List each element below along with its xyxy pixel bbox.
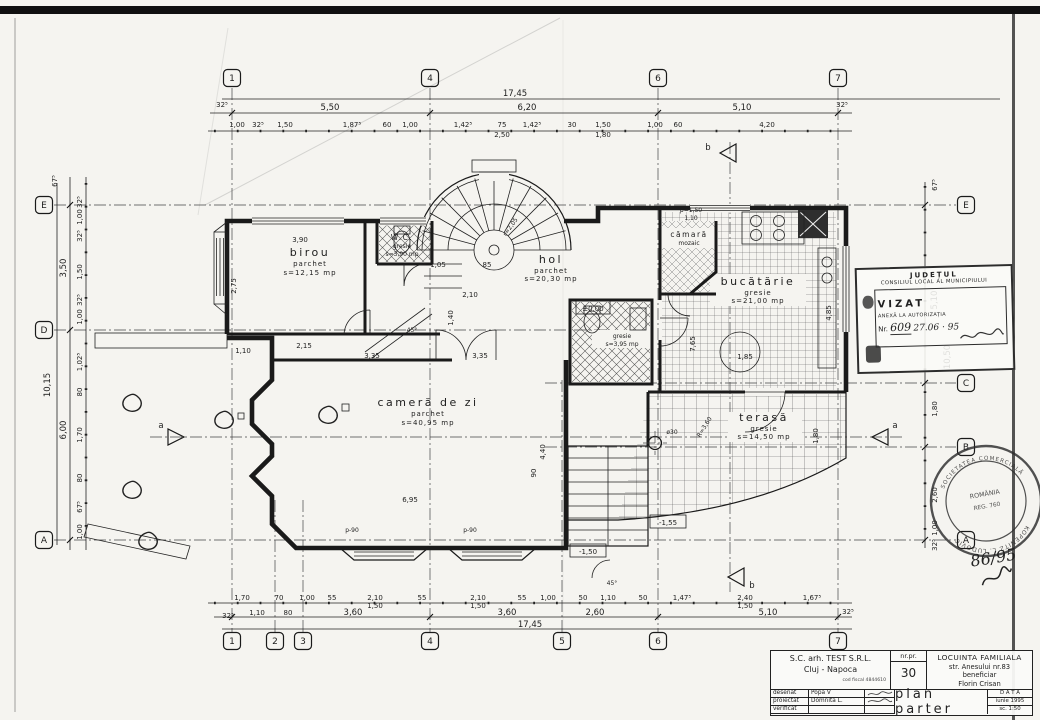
parapet-note: p=1,50 — [680, 207, 702, 214]
section-b-label: b — [749, 581, 754, 591]
room-terasa-area: s=14,50 mp — [737, 433, 790, 441]
grid-row-D: D — [41, 326, 48, 336]
dim-label: 2,10 — [470, 594, 486, 602]
role-label: verificat — [771, 706, 809, 714]
dim-label: 1,80 — [812, 428, 820, 444]
level-minus155: -1,55 — [659, 519, 677, 527]
level-zero: ±0.00 — [582, 305, 603, 313]
dim-label: 2,60 — [586, 608, 605, 618]
stamp-reg-number: REG. 760 — [973, 502, 1001, 513]
role-signature — [865, 690, 895, 698]
dim-label: 1,10 — [249, 609, 265, 617]
dim-label: 32⁵ — [836, 101, 848, 109]
dim-label: 1,50 — [470, 602, 486, 610]
room-terasa-finish: gresie — [750, 425, 777, 433]
room-camera-de-zi: cameră de zi — [377, 396, 478, 409]
dim-label: 1,85 — [737, 353, 753, 361]
stamp-emblem — [862, 296, 873, 309]
room-bucatarie: bucătărie — [721, 275, 796, 288]
dim-label: 1,42⁵ — [454, 121, 473, 129]
dim-label: 1,00 — [229, 121, 245, 129]
dim-label: 32⁵ — [76, 294, 84, 306]
room-camera-finish: parchet — [411, 410, 445, 418]
beneficiary-label: beneficiar — [929, 671, 1030, 680]
date-value: iunie 1995 — [988, 698, 1032, 706]
room-wc-area: s=3,90 mp — [385, 251, 418, 258]
dim-label: 1,47⁵ — [673, 594, 692, 602]
dim-label: 1,02⁵ — [76, 353, 84, 372]
grid-col-4: 4 — [427, 74, 433, 84]
dim-label: 1,50 — [277, 121, 293, 129]
project-number-value: 30 — [891, 662, 926, 680]
dim-label: 55 — [328, 594, 337, 602]
dim-label: 1,10 — [235, 347, 251, 355]
grid-col-3: 3 — [300, 637, 306, 647]
dim-label: 4,40 — [539, 444, 547, 460]
grid-row-E: E — [41, 201, 47, 211]
grid-row-C: C — [963, 379, 969, 389]
grid-col-6: 6 — [655, 637, 661, 647]
dim-label: 50 — [639, 594, 648, 602]
dim-label: 5,10 — [759, 608, 778, 618]
role-label: desenat — [771, 690, 809, 698]
dim-label: 6,20 — [518, 103, 537, 113]
room-camara-finish: mozaic — [678, 240, 699, 247]
garden — [84, 308, 432, 559]
dim-label: 10,15 — [43, 373, 53, 397]
project-address: str. Anesului nr.83 — [929, 663, 1030, 672]
scanned-floor-plan: 1 4 6 7 1 2 3 4 5 6 7 E D A E C B A a a … — [0, 0, 1040, 720]
parapet-note: p-90 — [345, 527, 359, 534]
dim-label: 1,00 — [540, 594, 556, 602]
grid-col-2: 2 — [272, 637, 278, 647]
dim-label: 2,15 — [296, 342, 312, 350]
role-label: proiectat — [771, 698, 809, 706]
dim-label: 1,87⁵ — [343, 121, 362, 129]
room-terasa: terasă — [739, 411, 789, 424]
stamp-nr-label: Nr. — [878, 325, 888, 333]
dim-label: 2,50 — [494, 131, 510, 139]
room-birou: birou — [290, 246, 331, 259]
dim-label: 7,65 — [689, 336, 697, 352]
dim-label: 3,60 — [344, 608, 363, 618]
grid-col-7: 7 — [835, 637, 841, 647]
stamp-date: 27.06 · 95 — [913, 322, 959, 333]
room-birou-area: s=12,15 mp — [283, 269, 336, 277]
room-camara: cămară — [670, 230, 707, 239]
dim-label: 1,50 — [367, 602, 383, 610]
grid-row-A: A — [41, 536, 48, 546]
floor-finishes — [379, 212, 846, 520]
column-diameter: ø30 — [666, 429, 677, 436]
role-name: Domnita L. — [809, 698, 865, 706]
municipal-approval-stamp: JUDEȚUL CONSILIUL LOCAL AL MUNICIPIULUI … — [855, 264, 1016, 374]
dim-label: 1,00 — [76, 209, 84, 225]
dim-label: 32⁵ — [76, 196, 84, 208]
handwritten-note: 86/95 — [969, 545, 1021, 593]
dim-label: 80 — [76, 474, 84, 483]
room-bucatarie-finish: gresie — [744, 289, 771, 297]
dim-label: 1,00 — [299, 594, 315, 602]
dim-label: 5,50 — [321, 103, 340, 113]
grid-col-4: 4 — [427, 637, 433, 647]
project-title: LOCUINTA FAMILIALA — [929, 653, 1030, 663]
dim-label: 5,10 — [733, 103, 752, 113]
dim-label: 67⁵ — [76, 501, 84, 513]
stamp-inner-box: VIZAT ANEXĂ LA AUTORIZAȚIA Nr. 609 27.06… — [874, 286, 1007, 347]
room-wc: W.C. — [391, 233, 414, 242]
role-signature — [865, 698, 895, 706]
dim-label: 6,00 — [59, 421, 69, 440]
dim-label: 2,75 — [230, 278, 238, 294]
project-number-label: nr.pr. — [891, 651, 926, 662]
dim-label: 2,10 — [462, 291, 478, 299]
room-baie-finish: gresie — [613, 333, 632, 340]
dim-label: 17,45 — [518, 620, 542, 630]
dim-label: 55 — [518, 594, 527, 602]
room-baie-area: s=3,95 mp — [605, 341, 638, 348]
grid-col-6: 6 — [655, 74, 661, 84]
architect-round-stamp: SOCIETATEA COMERCIALĂ KOPENITZ L. LUDOVI… — [918, 433, 1040, 570]
dim-label: 75 — [498, 121, 507, 129]
firm-fiscal-code: cod fiscal 4844610 — [773, 678, 888, 683]
dim-label: 32⁵ — [252, 121, 264, 129]
dim-label: 2,10 — [367, 594, 383, 602]
dim-label: 1,50 — [76, 264, 84, 280]
dim-label: 1,00 — [402, 121, 418, 129]
grid-col-7: 7 — [835, 74, 841, 84]
dim-label: 1,70 — [76, 427, 84, 443]
room-hol-area: s=20,30 mp — [524, 275, 577, 283]
dim-label: 6,95 — [402, 496, 418, 504]
dim-label: 1,67⁵ — [803, 594, 822, 602]
stamp-vizat: VIZAT — [877, 298, 925, 310]
scale-value: sc. 1:50 — [988, 706, 1032, 714]
firm-name: S.C. arh. TEST S.R.L. — [773, 654, 888, 663]
grid-col-5: 5 — [559, 637, 565, 647]
section-b-label: b — [705, 143, 710, 153]
parapet-note: 1,10 — [684, 215, 698, 222]
dim-label: 32⁵ — [222, 612, 234, 620]
room-bucatarie-area: s=21,00 mp — [731, 297, 784, 305]
section-a-label: a — [158, 421, 163, 431]
dim-label: 67⁵ — [51, 175, 59, 187]
room-hol-finish: parchet — [534, 267, 568, 275]
dim-label: 30 — [568, 121, 577, 129]
dim-label: 1,42⁵ — [523, 121, 542, 129]
dim-label: 1,50 — [595, 121, 611, 129]
drawing-title: plan parter — [895, 690, 988, 714]
dim-label: 1,05 — [430, 261, 446, 269]
room-wc-finish: gresie — [393, 243, 412, 250]
role-signature — [865, 706, 895, 714]
dim-label: 1,80 — [931, 401, 939, 417]
angle-45: 45° — [607, 580, 618, 587]
dim-label: 17,45 — [503, 89, 527, 99]
dim-label: 1,50 — [737, 602, 753, 610]
room-birou-finish: parchet — [293, 260, 327, 268]
stamp-nr-value: 609 — [890, 321, 911, 336]
dim-label: 80 — [284, 609, 293, 617]
dim-label: 60 — [674, 121, 683, 129]
date-label: D A T A — [988, 690, 1032, 698]
room-hol: hol — [539, 253, 563, 266]
dim-label: 1,40 — [447, 310, 455, 326]
role-name — [809, 706, 865, 714]
dim-label: 90 — [530, 469, 538, 478]
dim-label: 32⁵ — [842, 608, 854, 616]
dim-label: 1,00 — [76, 524, 84, 540]
level-minus150: -1,50 — [579, 548, 597, 556]
dim-label: 67⁵ — [931, 179, 939, 191]
angle-45: 45° — [407, 327, 418, 334]
dim-label: 70 — [275, 594, 284, 602]
dim-label: 32⁵ — [76, 230, 84, 242]
title-block: S.C. arh. TEST S.R.L. Cluj - Napoca cod … — [770, 650, 1033, 716]
grid-row-E: E — [963, 201, 969, 211]
dim-label: 1,00 — [76, 309, 84, 325]
dim-label: 60 — [383, 121, 392, 129]
dim-label: 3,60 — [498, 608, 517, 618]
dim-label: 85 — [483, 261, 492, 269]
dim-label: 4,20 — [759, 121, 775, 129]
stamp-emblem — [866, 345, 881, 362]
stamp-center-text: ROMÂNIA — [969, 486, 1001, 500]
dim-label: 3,35 — [364, 352, 380, 360]
dim-label: 32⁵ — [216, 101, 228, 109]
grid-col-1: 1 — [229, 637, 235, 647]
signature-scribble — [958, 325, 1004, 344]
dim-label: 3,35 — [472, 352, 488, 360]
dim-label: 3,50 — [59, 259, 69, 278]
dim-label: 4,85 — [825, 305, 833, 321]
grid-col-1: 1 — [229, 74, 235, 84]
dim-label: 1,70 — [234, 594, 250, 602]
dim-label: 1,00 — [647, 121, 663, 129]
dim-label: 55 — [418, 594, 427, 602]
firm-city: Cluj - Napoca — [773, 665, 888, 674]
room-camera-area: s=40,95 mp — [401, 419, 454, 427]
dim-label: 3,90 — [292, 236, 308, 244]
dim-label: 80 — [76, 388, 84, 397]
section-a-label: a — [892, 421, 897, 431]
dim-label: 1,10 — [600, 594, 616, 602]
role-name: Popa V — [809, 690, 865, 698]
dim-label: 2,40 — [737, 594, 753, 602]
dim-label: 50 — [579, 594, 588, 602]
parapet-note: p-90 — [463, 527, 477, 534]
dim-label: 1,80 — [595, 131, 611, 139]
